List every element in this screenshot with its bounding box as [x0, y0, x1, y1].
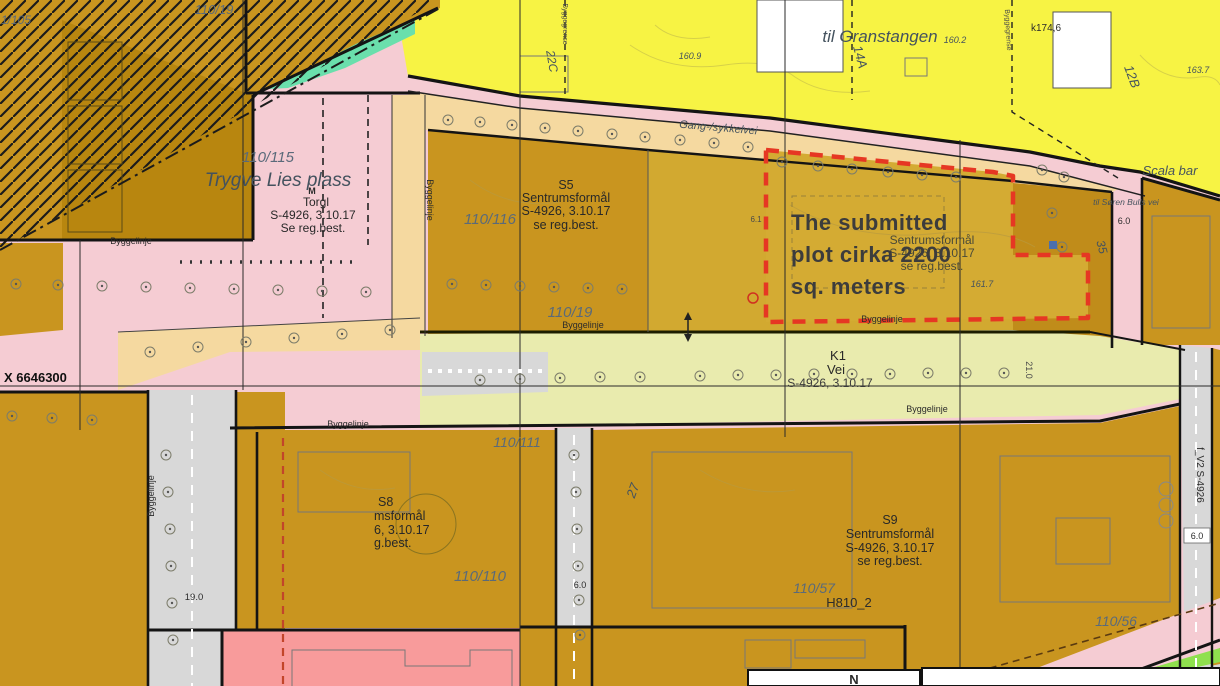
label-110-57: 110/57	[793, 580, 836, 596]
label-x-6646300: X 6646300	[4, 370, 67, 385]
label-k1-plan: S-4926, 3.10.17	[787, 376, 873, 390]
label-s9-name: Sentrumsformål	[846, 527, 934, 541]
legend-box	[922, 668, 1220, 686]
annotation-line-3: sq. meters	[791, 274, 906, 299]
annotation-line-2: plot cirka 2200	[791, 242, 951, 267]
zone-salmon	[222, 628, 520, 686]
zone-gray-sidewalk	[422, 352, 548, 396]
zone-s5	[428, 130, 648, 336]
zone-ochre-left-sliver	[0, 243, 63, 336]
label-s8-name: msformål	[374, 509, 425, 523]
label-s5-name: Sentrumsformål	[522, 191, 610, 205]
zone-tan-strip	[392, 95, 425, 340]
label-110-116: 110/116	[464, 211, 517, 228]
legend-strip: N	[748, 668, 1220, 686]
label-6-1: 6.1	[750, 215, 762, 224]
label-soren-bulls-vei: til Søren Bulls vei	[1093, 197, 1160, 207]
label-s5-note: se reg.best.	[533, 218, 598, 232]
label-h810-2: H810_2	[826, 595, 872, 610]
label-110-19: 110/19	[548, 304, 593, 321]
label-6-0-b: 6.0	[574, 580, 587, 590]
label-s9-plan: S-4926, 3.10.17	[846, 541, 935, 555]
label-scala-bar: Scala bar	[1143, 163, 1199, 178]
label-s5-code: S5	[558, 178, 573, 192]
label-byggelinje-c: Byggelinje	[861, 314, 903, 324]
label-1-105: 1/105	[1, 13, 31, 27]
label-6-0-a: 6.0	[1118, 216, 1131, 226]
label-s5-plan: S-4926, 3.10.17	[522, 204, 611, 218]
label-s9-note: se reg.best.	[857, 554, 922, 568]
label-s8-note: g.best.	[374, 536, 412, 550]
label-163-7: 163.7	[1187, 65, 1211, 75]
label-k1-code: K1	[830, 348, 846, 363]
label-110-19-top: 110/19	[195, 2, 234, 17]
label-byggelinje-e: Byggelinje	[327, 419, 369, 429]
north-arrow-label: N	[849, 672, 858, 686]
label-byggelinje-vert-2: Byggelinje	[146, 475, 156, 517]
label-torg-note: Se reg.best.	[281, 221, 346, 235]
label-s9-code: S9	[882, 513, 897, 527]
zoning-map: N til Granstangen k174,6 160.2 160.9 163…	[0, 0, 1220, 686]
label-k1-name: Vei	[827, 362, 845, 377]
label-byggelinje-d: Byggelinje	[906, 404, 948, 414]
label-s8-plan: 6, 3.10.17	[374, 523, 430, 537]
label-fv2-s4926: f_V2 S-4926	[1194, 447, 1205, 503]
label-byggelinje-vert-1: Byggelinje	[425, 179, 435, 221]
label-torg-plan: S-4926, 3.10.17	[270, 208, 356, 222]
label-byggelinje-b: Byggelinje	[562, 320, 604, 330]
label-torg-name: Torgl	[303, 195, 329, 209]
label-til-granstangen: til Granstangen	[822, 27, 937, 46]
label-110-111: 110/111	[493, 434, 541, 450]
label-19-0: 19.0	[185, 592, 204, 603]
label-110-115: 110/115	[242, 149, 295, 166]
label-6-0-c: 6.0	[1191, 531, 1204, 541]
label-trygve-lies-plass: Trygve Lies plass	[205, 170, 352, 191]
label-160-9: 160.9	[679, 51, 702, 61]
label-161-7: 161.7	[971, 279, 995, 289]
label-110-110: 110/110	[454, 568, 507, 585]
label-s8-code: S8	[378, 495, 393, 509]
annotation-line-1: The submitted	[791, 210, 948, 235]
label-160-2: 160.2	[944, 35, 967, 45]
zoning-map-canvas: N til Granstangen k174,6 160.2 160.9 163…	[0, 0, 1220, 686]
label-byggegrense-1: Byggegrense	[561, 3, 568, 44]
label-110-56: 110/56	[1095, 613, 1137, 629]
zone-ochre-bottomleft	[0, 392, 148, 686]
label-k174: k174,6	[1031, 23, 1061, 34]
blue-dot-symbol	[1049, 241, 1057, 249]
label-21-0: 21.0	[1024, 361, 1034, 379]
north-arrow-box	[748, 670, 920, 686]
label-byggelinje-a: Byggelinje	[110, 236, 152, 246]
